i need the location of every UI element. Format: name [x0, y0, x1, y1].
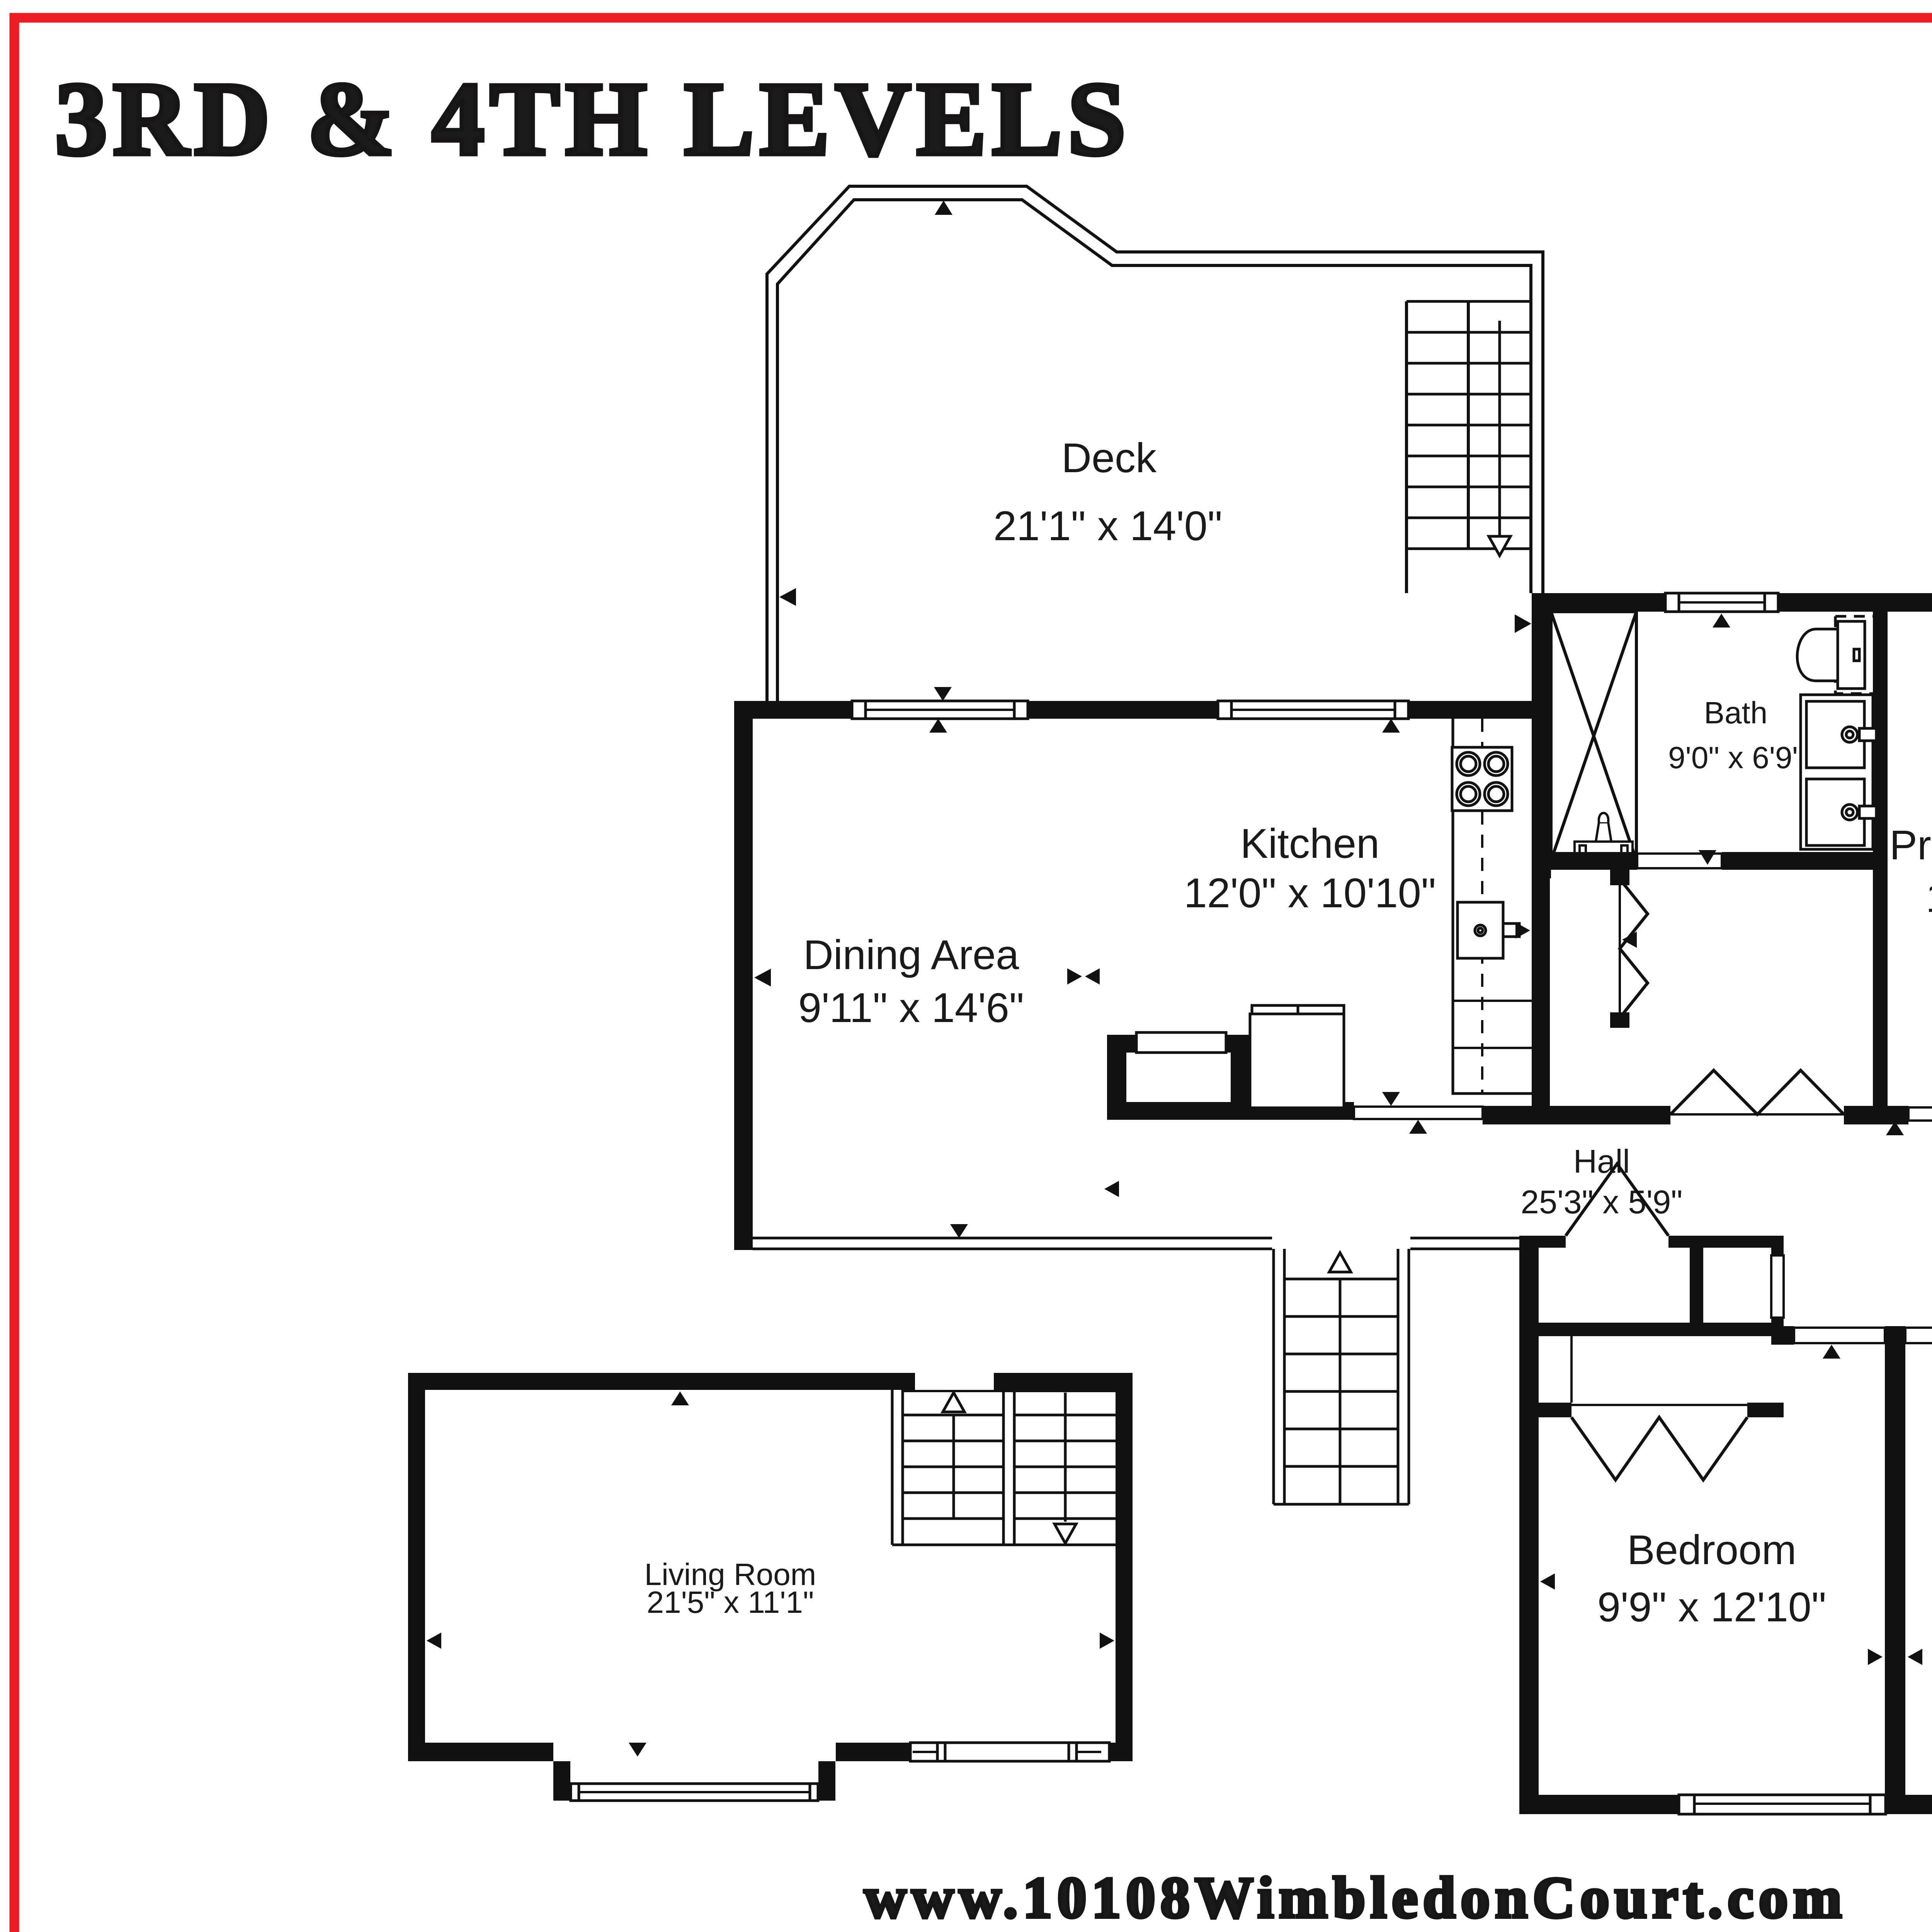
- svg-text:Bath: Bath: [1704, 696, 1768, 730]
- svg-text:21'5" x 11'1": 21'5" x 11'1": [647, 1585, 814, 1619]
- svg-text:9'11" x 14'6": 9'11" x 14'6": [798, 984, 1024, 1031]
- svg-text:18'5" x 13'10": 18'5" x 13'10": [1926, 874, 1932, 921]
- svg-text:www.10108WimbledonCourt.com: www.10108WimbledonCourt.com: [864, 1865, 1847, 1930]
- svg-text:9'9" x 12'10": 9'9" x 12'10": [1597, 1583, 1826, 1630]
- svg-text:12'0" x 10'10": 12'0" x 10'10": [1184, 869, 1436, 916]
- svg-text:25'3" x 5'9": 25'3" x 5'9": [1521, 1184, 1683, 1221]
- svg-text:Deck: Deck: [1061, 434, 1157, 481]
- svg-text:9'0" x 6'9": 9'0" x 6'9": [1668, 740, 1803, 775]
- svg-text:3RD & 4TH LEVELS: 3RD & 4TH LEVELS: [55, 61, 1131, 177]
- svg-text:Hall: Hall: [1573, 1143, 1630, 1180]
- svg-text:Kitchen: Kitchen: [1240, 820, 1379, 867]
- svg-text:21'1" x 14'0": 21'1" x 14'0": [993, 502, 1222, 549]
- svg-text:Dining Area: Dining Area: [803, 931, 1019, 978]
- svg-text:Primary Bedroom: Primary Bedroom: [1889, 821, 1932, 868]
- svg-text:Bedroom: Bedroom: [1627, 1526, 1796, 1573]
